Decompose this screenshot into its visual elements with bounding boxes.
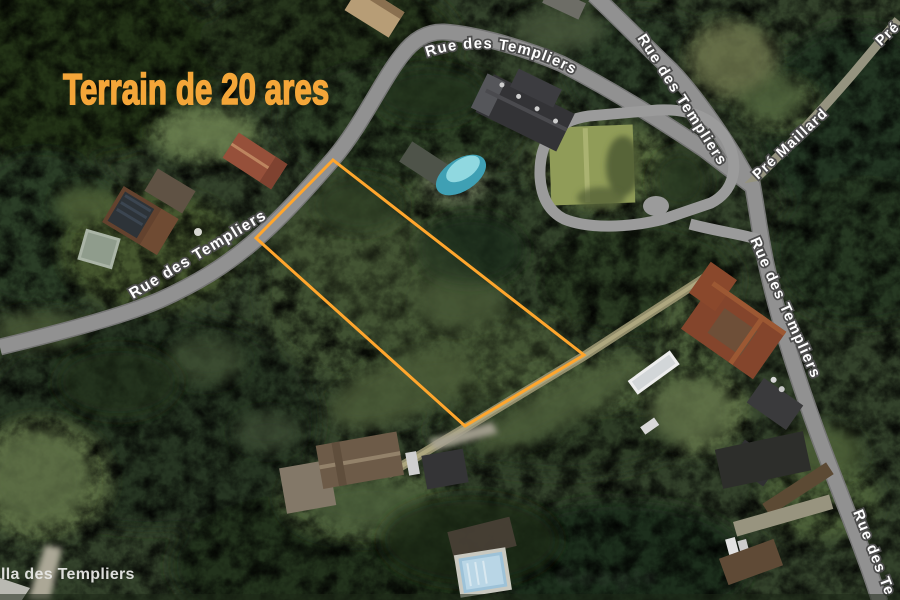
svg-text:lla des Templiers: lla des Templiers xyxy=(1,566,135,583)
svg-text:Google: Google xyxy=(556,564,660,592)
svg-text:Terrain de 20 ares: Terrain de 20 ares xyxy=(63,65,329,114)
